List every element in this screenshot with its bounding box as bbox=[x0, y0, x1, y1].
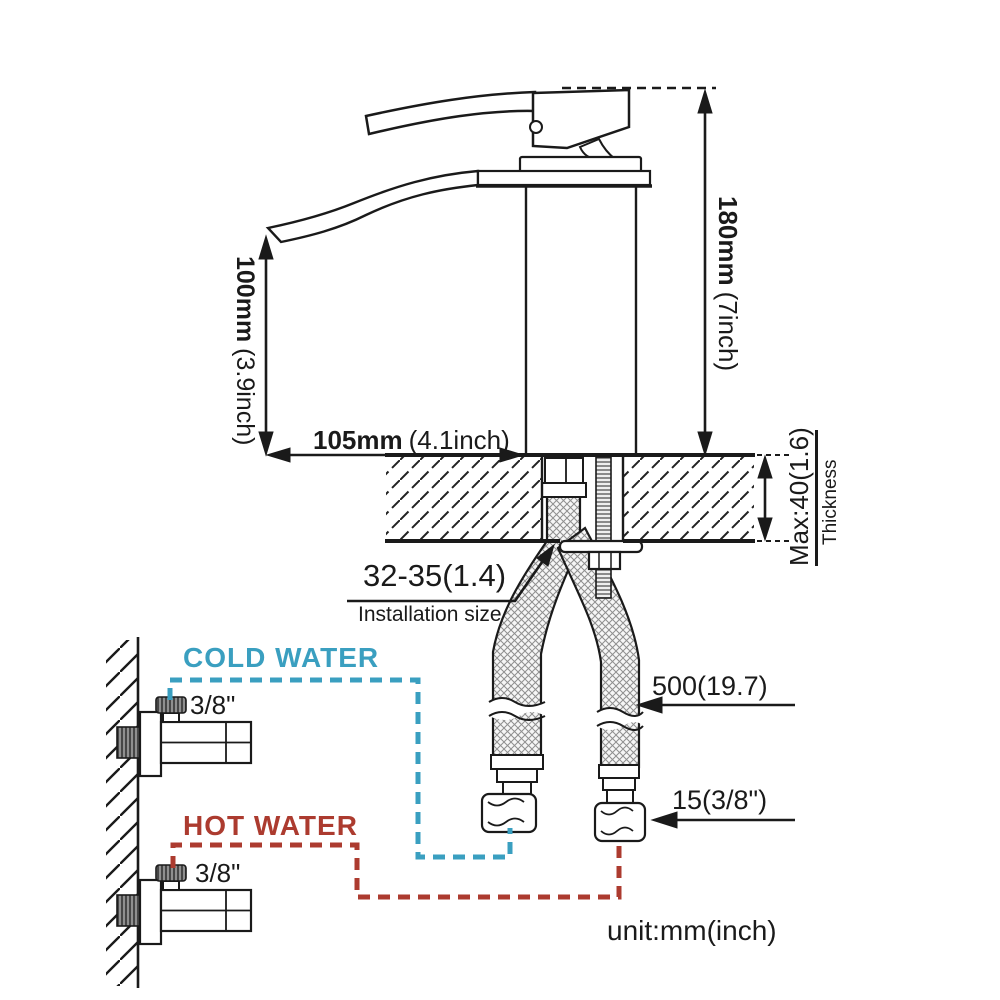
cold-valve-size: 3/8" bbox=[190, 692, 235, 719]
handle-lever bbox=[366, 92, 535, 134]
dim-total-height: 180mm(7inch) bbox=[714, 196, 741, 351]
faucet-outline bbox=[268, 90, 652, 455]
wall bbox=[106, 637, 138, 988]
dim-spout-height: 100mm(3.9inch) bbox=[232, 256, 258, 428]
hot-water-label: HOT WATER bbox=[183, 811, 358, 840]
installation-hole-label: Installation size bbox=[358, 604, 502, 626]
handle-base-plate bbox=[520, 157, 641, 172]
counter-thickness-label: Thickness bbox=[821, 447, 841, 545]
dim-hose-length: 500(19.7) bbox=[652, 672, 768, 700]
countertop-cross-section bbox=[385, 455, 792, 541]
diagram-line-art bbox=[0, 0, 1000, 1000]
hot-valve-size: 3/8" bbox=[195, 860, 240, 887]
dim-hose-connector: 15(3/8") bbox=[672, 786, 767, 814]
cold-water-label: COLD WATER bbox=[183, 643, 379, 672]
dim-counter-thickness: Max:40(1.6) bbox=[786, 430, 818, 566]
dim-installation-hole: 32-35(1.4) bbox=[363, 560, 506, 593]
dim-spout-reach: 105mm(4.1inch) bbox=[313, 427, 510, 454]
mounting-nut bbox=[589, 552, 620, 569]
waterfall-spout bbox=[268, 171, 478, 242]
spout-top-plate bbox=[478, 171, 650, 185]
faucet-installation-diagram: 100mm(3.9inch) 180mm(7inch) 105mm(4.1inc… bbox=[0, 0, 1000, 1000]
shank-fitting bbox=[545, 458, 583, 483]
handle-block bbox=[533, 90, 629, 148]
handle-cap-dot bbox=[530, 121, 542, 133]
unit-note: unit:mm(inch) bbox=[607, 916, 777, 945]
threaded-rod bbox=[596, 457, 611, 598]
